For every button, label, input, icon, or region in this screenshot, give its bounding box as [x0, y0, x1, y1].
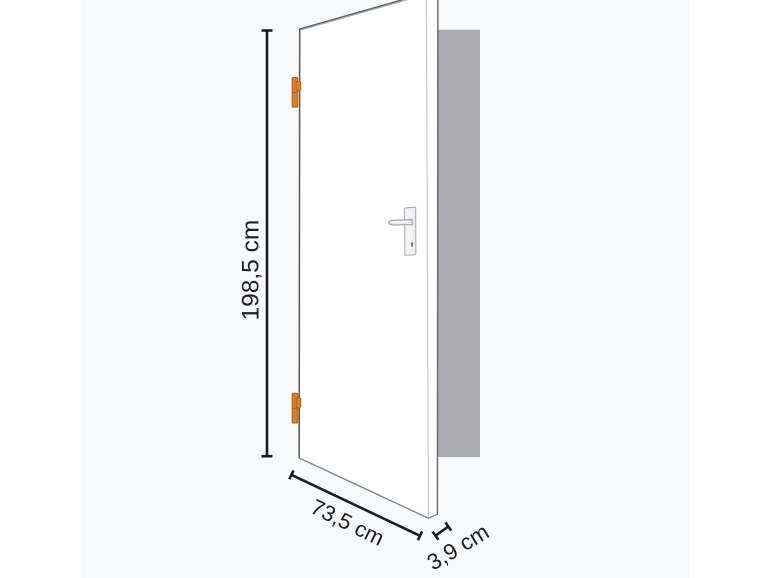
svg-text:198,5 cm: 198,5 cm: [238, 220, 265, 321]
